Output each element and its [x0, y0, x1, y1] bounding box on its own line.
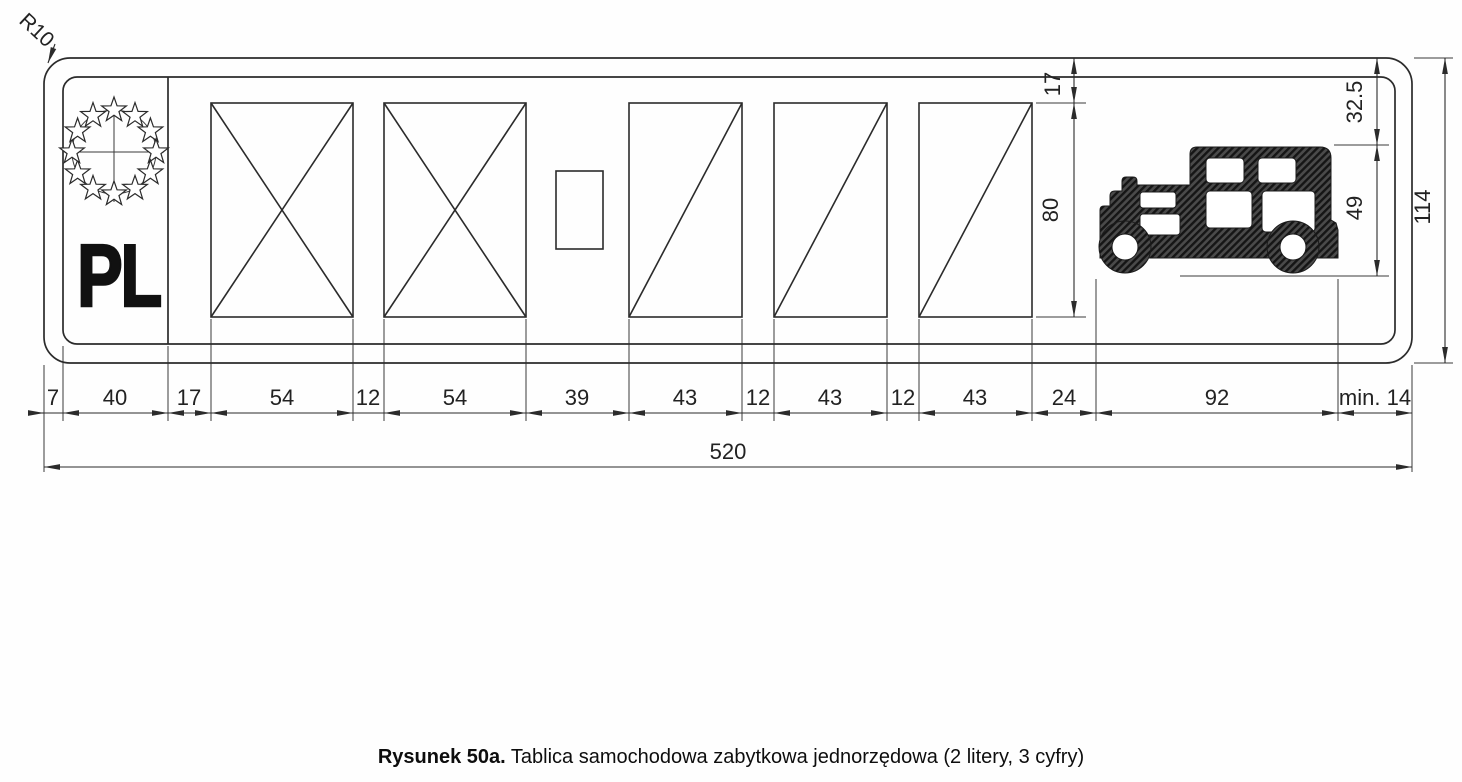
bottom-dimension-labels: 7 40 17 54 12 54 39 43 12 43 12 43 24 92… [47, 385, 1411, 464]
country-code-label: PL [77, 227, 160, 325]
letter-box-1 [211, 103, 353, 317]
figure-caption-label: Rysunek 50a. [378, 746, 506, 768]
dim-label-char-height: 80 [1038, 198, 1063, 222]
dim-label-7: 7 [47, 385, 59, 410]
digit-box-3 [919, 103, 1032, 317]
figure-caption: Rysunek 50a. Tablica samochodowa zabytko… [0, 746, 1462, 769]
vintage-car-icon [1099, 147, 1338, 273]
figure-caption-text: Tablica samochodowa zabytkowa jednorzędo… [511, 746, 1084, 768]
eu-stars-emblem [60, 97, 169, 205]
dim-label-top-margin: 17 [1040, 72, 1065, 96]
corner-radius-callout: R10 [15, 9, 59, 52]
dim-label-emblem-height: 49 [1342, 196, 1367, 220]
dim-label-92: 92 [1205, 385, 1229, 410]
dim-label-min14: min. 14 [1339, 385, 1411, 410]
dim-label-43c: 43 [963, 385, 987, 410]
dim-label-total-width: 520 [710, 439, 747, 464]
dim-label-43a: 43 [673, 385, 697, 410]
dim-label-12c: 12 [891, 385, 915, 410]
dim-label-43b: 43 [818, 385, 842, 410]
digit-box-1 [629, 103, 742, 317]
dim-label-total-height: 114 [1410, 189, 1435, 224]
digit-box-2 [774, 103, 887, 317]
dim-label-40: 40 [103, 385, 127, 410]
dim-label-12a: 12 [356, 385, 380, 410]
technical-drawing-figure: PL [0, 0, 1462, 782]
dim-label-17: 17 [177, 385, 201, 410]
dim-label-54b: 54 [443, 385, 467, 410]
plate-drawing: PL [0, 0, 1462, 782]
dim-label-54a: 54 [270, 385, 294, 410]
dim-label-12b: 12 [746, 385, 770, 410]
dim-label-emblem-offset: 32.5 [1342, 81, 1367, 124]
dim-label-39: 39 [565, 385, 589, 410]
letter-box-2 [384, 103, 526, 317]
dim-label-24: 24 [1052, 385, 1076, 410]
hyphen-box [556, 171, 603, 249]
